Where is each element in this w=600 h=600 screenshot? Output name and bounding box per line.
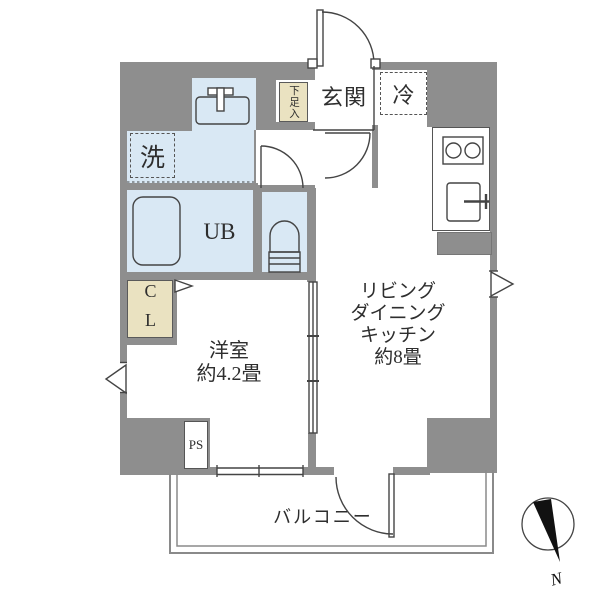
floor-plan: N 玄関 冷 洗 下足入 UB CL 洋室 約4.2畳 リビング ダイニング キ… xyxy=(0,0,600,600)
balcony-label: バルコニー xyxy=(248,504,398,528)
compass: N xyxy=(522,498,574,590)
wall-segment xyxy=(276,122,315,130)
ldk-label: リビング ダイニング キッチン 約8畳 xyxy=(328,281,468,369)
fridge-space xyxy=(380,72,427,115)
washroom-door-arc xyxy=(261,146,303,188)
wall-left-lower xyxy=(120,392,127,418)
wall-thin xyxy=(254,130,256,183)
western-room-name: 洋室 xyxy=(148,340,310,363)
entrance-door-leaf xyxy=(317,10,323,66)
wall-block-se xyxy=(427,418,493,473)
ldk-line3: キッチン xyxy=(328,325,468,347)
closet-box xyxy=(127,280,173,338)
wall-segment xyxy=(372,125,378,188)
wall-segment xyxy=(210,467,217,475)
unit-bath-room xyxy=(127,190,253,272)
balcony-door-leaf xyxy=(389,474,394,537)
balcony-door-arc xyxy=(336,477,393,534)
wall-segment xyxy=(254,185,315,192)
wall-segment xyxy=(393,467,430,475)
hall-door-arc xyxy=(325,133,370,178)
kitchen-counter xyxy=(432,127,490,231)
compass-needle-icon xyxy=(533,499,560,562)
wall-thin xyxy=(173,280,177,338)
west-window-mark xyxy=(106,365,126,393)
closet-door-mark xyxy=(175,280,192,292)
east-window-mark xyxy=(491,272,513,296)
sliding-partition xyxy=(309,282,317,433)
compass-circle xyxy=(522,498,574,550)
wall-segment xyxy=(253,190,262,272)
pillar xyxy=(256,78,276,130)
wall-segment xyxy=(372,62,427,70)
wall-segment xyxy=(120,183,258,190)
ldk-line2: ダイニング xyxy=(328,303,468,325)
wall-segment xyxy=(120,272,316,280)
shoe-cabinet-box xyxy=(279,82,308,122)
wall-segment xyxy=(303,467,334,475)
washer-space xyxy=(130,133,175,178)
wall-left xyxy=(120,62,127,362)
western-room-label: 洋室 約4.2畳 xyxy=(148,340,310,386)
ldk-line1: リビング xyxy=(328,281,468,303)
balcony-railing-inner xyxy=(177,470,486,546)
ldk-size: 約8畳 xyxy=(328,347,468,369)
compass-north-label: N xyxy=(548,568,566,590)
balcony-railing-outer xyxy=(170,470,493,553)
wall-segment xyxy=(190,62,258,78)
genkan-label: 玄関 xyxy=(313,82,375,110)
washbasin-niche xyxy=(190,78,258,130)
western-room-size: 約4.2畳 xyxy=(148,363,310,386)
pipe-space-box xyxy=(184,421,208,469)
wall-segment xyxy=(120,62,192,131)
entrance-door-arc xyxy=(322,12,374,64)
wall-segment xyxy=(427,62,497,127)
kitchen-counter-base xyxy=(437,232,492,255)
wall-segment xyxy=(307,188,316,282)
toilet-room xyxy=(262,190,307,272)
